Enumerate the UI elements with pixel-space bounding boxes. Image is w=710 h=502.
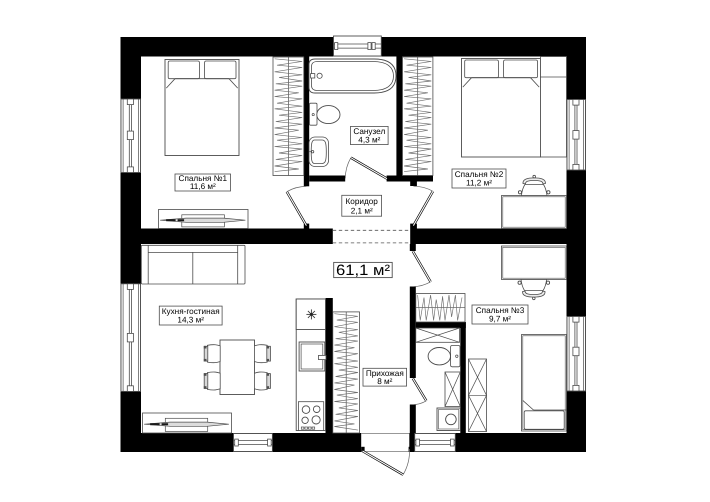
svg-text:9,7 м²: 9,7 м² [489, 315, 511, 324]
svg-text:Кухня-гостиная: Кухня-гостиная [162, 307, 220, 316]
svg-text:14,3 м²: 14,3 м² [177, 316, 204, 325]
svg-text:Спальня №2: Спальня №2 [455, 170, 504, 179]
svg-text:2,1 м²: 2,1 м² [351, 207, 373, 216]
svg-text:8 м²: 8 м² [377, 377, 392, 386]
svg-text:Коридор: Коридор [346, 197, 379, 206]
svg-text:11,6 м²: 11,6 м² [190, 182, 216, 191]
svg-text:4,3 м²: 4,3 м² [358, 135, 380, 144]
svg-text:Спальня №3: Спальня №3 [476, 306, 525, 315]
svg-text:11,2 м²: 11,2 м² [466, 179, 492, 188]
svg-text:61,1 м²: 61,1 м² [336, 262, 390, 279]
